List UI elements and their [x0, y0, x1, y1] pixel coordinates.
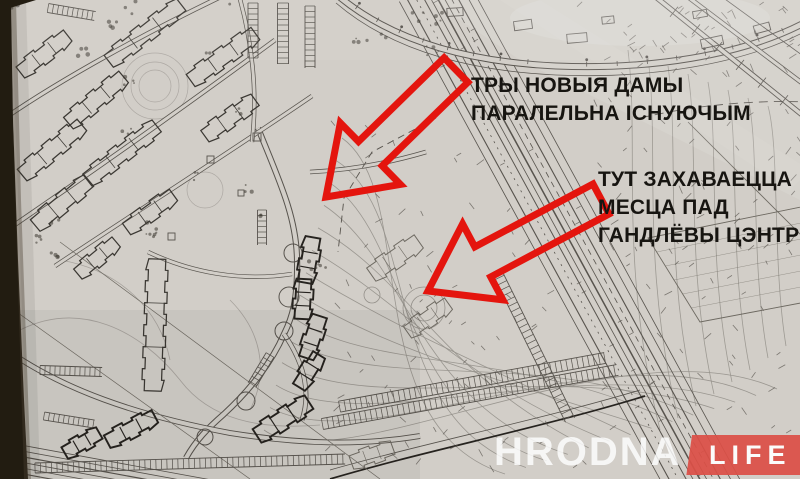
annotation-line: ПАРАЛЕЛЬНА ІСНУЮЧЫМ	[471, 100, 751, 128]
annotation-line: МЕСЦА ПАД	[598, 194, 799, 222]
watermark-life-badge: LIFE	[686, 435, 800, 475]
arrow-icon-shopping-center	[428, 184, 609, 300]
site-plan-photo: ТРЫ НОВЫЯ ДАМЫ ПАРАЛЕЛЬНА ІСНУЮЧЫМ ТУТ З…	[0, 0, 800, 479]
watermark-hrodna: HRODNA	[494, 432, 682, 472]
annotation-line: ТУТ ЗАХАВАЕЦЦА	[598, 166, 799, 194]
annotation-line: ГАНДЛЁВЫ ЦЭНТР	[598, 222, 799, 250]
arrow-icon-new-houses	[326, 58, 468, 197]
annotation-shopping-center: ТУТ ЗАХАВАЕЦЦА МЕСЦА ПАД ГАНДЛЁВЫ ЦЭНТР	[598, 166, 799, 250]
annotation-line: ТРЫ НОВЫЯ ДАМЫ	[471, 72, 751, 100]
annotation-new-houses: ТРЫ НОВЫЯ ДАМЫ ПАРАЛЕЛЬНА ІСНУЮЧЫМ	[471, 72, 751, 128]
watermark-life-text: LIFE	[692, 435, 800, 475]
